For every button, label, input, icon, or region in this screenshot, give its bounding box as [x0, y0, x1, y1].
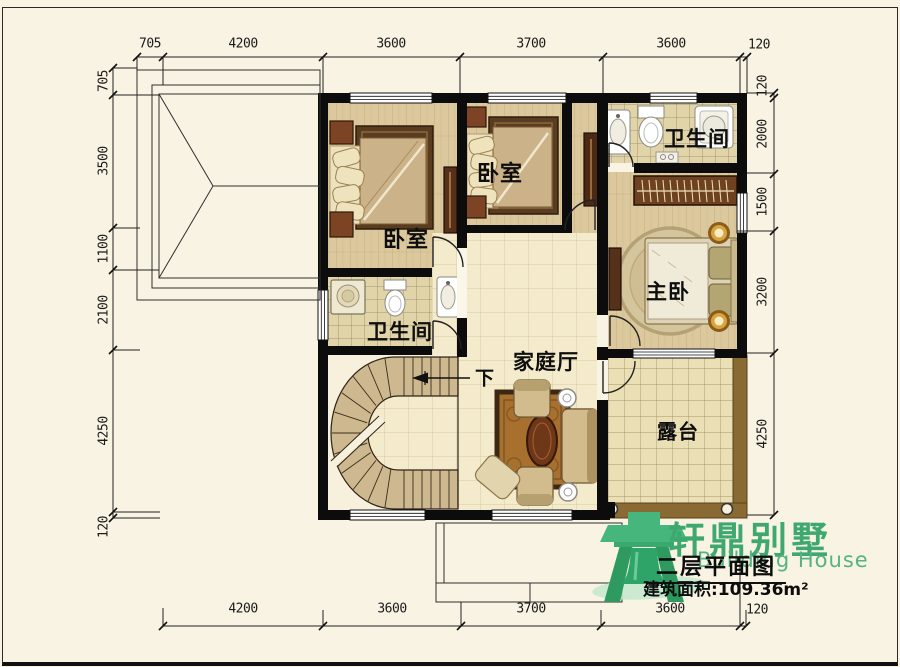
bedside-lamp — [708, 222, 730, 244]
window — [492, 510, 572, 520]
dim-label-bottom-0: 4200 — [228, 602, 257, 617]
dim-label-right-1: 2000 — [756, 119, 771, 148]
vanity — [656, 152, 678, 163]
room-label-bedroom-mid: 卧室 — [477, 156, 523, 188]
room-label-bathroom-left: 卫生间 — [367, 316, 433, 346]
window — [350, 510, 425, 520]
building-area-text: 建筑面积:109.36m² — [643, 575, 809, 600]
dresser — [609, 248, 621, 310]
sink — [441, 285, 455, 309]
window — [633, 349, 715, 358]
dim-label-left-2: 1100 — [97, 234, 112, 263]
room-label-bathroom-top: 卫生间 — [664, 123, 730, 153]
bedside-lamp — [708, 310, 730, 332]
dim-label-left-5: 120 — [97, 516, 112, 538]
room-label-bedroom-left: 卧室 — [383, 222, 429, 254]
sink — [610, 119, 626, 145]
dim-label-top-0: 705 — [139, 37, 161, 52]
dim-label-top-5: 120 — [748, 38, 770, 53]
dim-label-right-4: 4250 — [756, 419, 771, 448]
dim-label-left-1: 3500 — [97, 146, 112, 175]
window — [350, 93, 432, 103]
dim-label-bottom-1: 3600 — [377, 602, 406, 617]
dim-label-right-0: 120 — [756, 75, 771, 97]
room-label-master-bedroom: 主卧 — [646, 276, 690, 306]
dim-label-bottom-4: 120 — [746, 603, 768, 618]
side-table — [559, 483, 577, 501]
room-label-terrace: 露台 — [657, 416, 699, 445]
dim-label-left-0: 705 — [97, 70, 112, 92]
dim-label-left-3: 2100 — [97, 295, 112, 324]
nightstand — [466, 196, 486, 218]
stairs-down-label: 下 — [475, 364, 495, 391]
nightstand — [330, 121, 353, 144]
dim-label-bottom-2: 3700 — [516, 602, 545, 617]
window — [650, 93, 697, 103]
dim-label-top-4: 3600 — [656, 37, 685, 52]
blueprint-canvas: 卧室 卧室 卫生间 卫生间 主卧 家庭厅 露台 下 70542003600370… — [0, 0, 900, 667]
dim-label-right-2: 1500 — [756, 187, 771, 216]
dim-label-left-4: 4250 — [97, 416, 112, 445]
room-label-family-hall: 家庭厅 — [513, 346, 579, 376]
nightstand — [330, 212, 353, 237]
lower-roof-outline — [137, 70, 320, 300]
dim-label-top-2: 3600 — [376, 37, 405, 52]
window — [737, 193, 747, 233]
nightstand — [466, 107, 486, 127]
dim-label-right-3: 3200 — [756, 277, 771, 306]
dim-label-top-3: 3700 — [516, 37, 545, 52]
bathroom-left-fixtures — [331, 277, 459, 317]
dim-label-top-1: 4200 — [228, 37, 257, 52]
side-table — [558, 389, 576, 407]
window — [488, 93, 566, 103]
